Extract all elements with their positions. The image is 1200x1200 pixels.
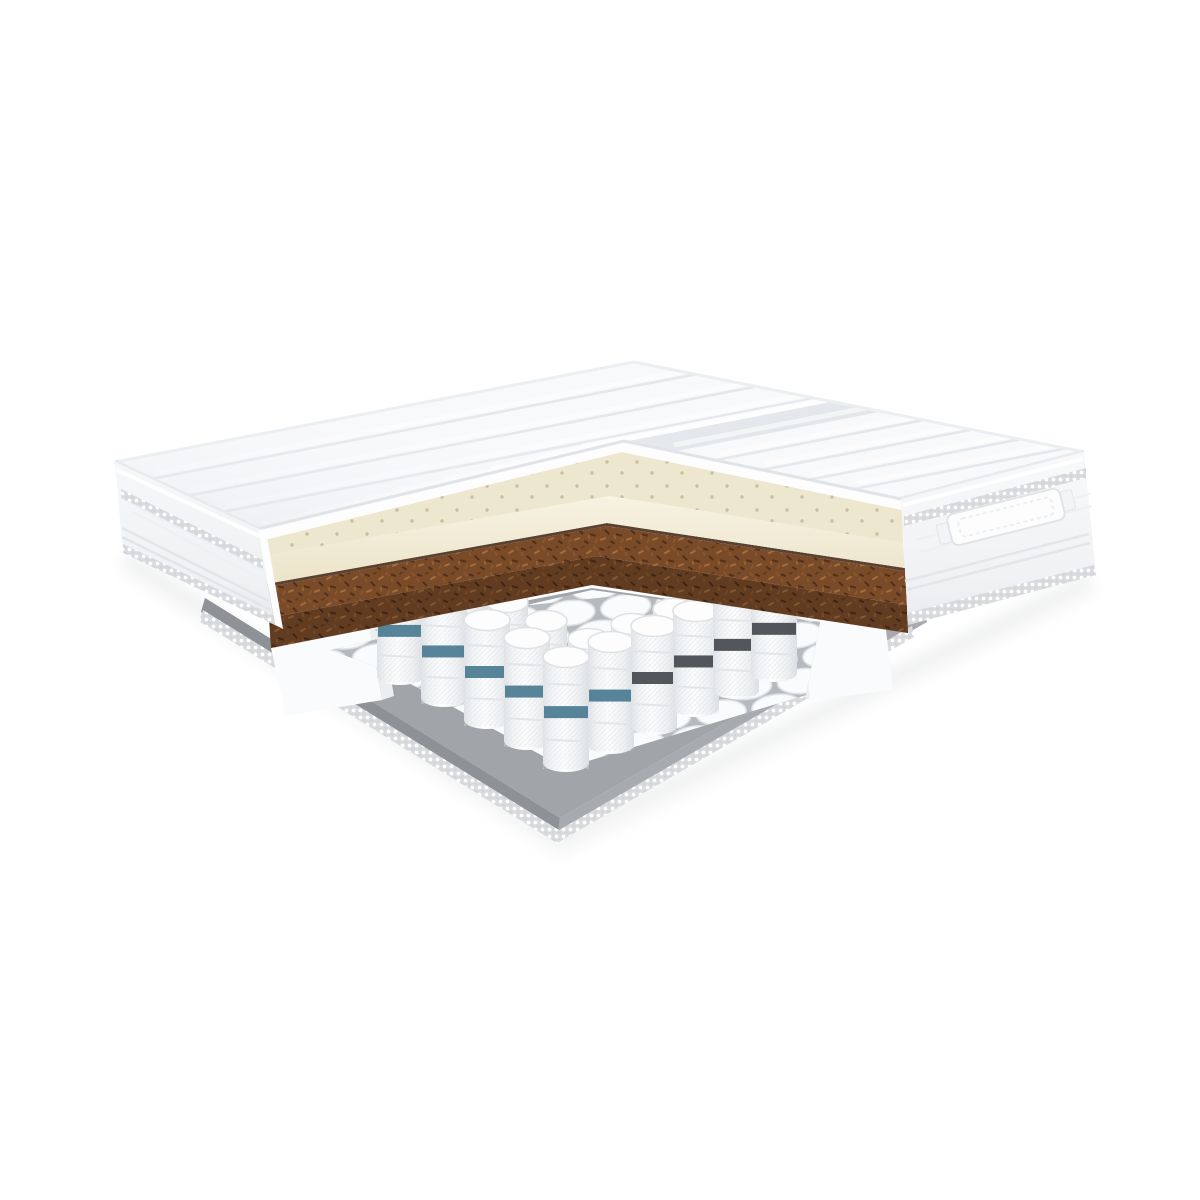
spring-top [504, 628, 550, 649]
spring-band [674, 655, 718, 667]
spring-top [588, 632, 634, 653]
spring-band [752, 623, 796, 635]
mattress-cutaway-image [0, 0, 1200, 1200]
pocket-spring [464, 610, 510, 730]
spring-band [589, 690, 633, 702]
spring-band [422, 645, 466, 657]
pocket-spring [631, 616, 677, 736]
spring-band [378, 625, 422, 637]
pocket-spring [588, 632, 634, 755]
spring-top [631, 616, 677, 637]
spring-top [464, 610, 510, 631]
spring-band [544, 706, 588, 718]
spring-band [465, 666, 509, 678]
spring-top [673, 601, 719, 622]
pocket-spring [673, 601, 719, 718]
pocket-spring [543, 647, 589, 773]
product-photo-stage [0, 0, 1200, 1200]
spring-band [632, 672, 676, 684]
spring-top [543, 647, 589, 668]
spring-band [505, 686, 549, 698]
